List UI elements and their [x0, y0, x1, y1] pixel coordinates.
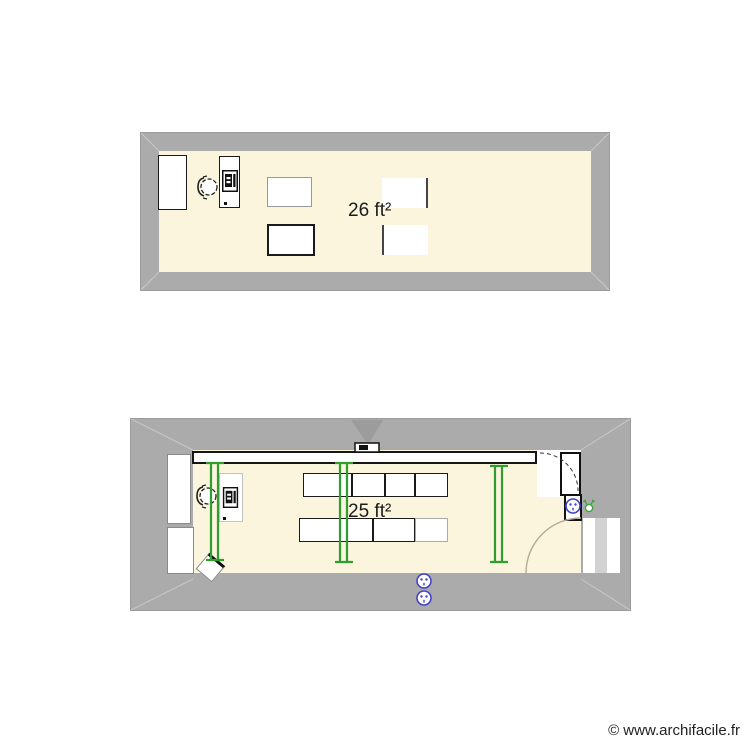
student-table[interactable] [415, 473, 448, 497]
watermark: © www.archifacile.fr [560, 722, 740, 739]
desk-mark [223, 517, 226, 520]
desk-mark [224, 202, 227, 205]
floorplan-canvas: 26 ft² [0, 0, 750, 750]
power-socket-icon[interactable] [415, 572, 433, 590]
table[interactable] [382, 225, 428, 255]
door-opening[interactable] [607, 518, 620, 573]
lower-room-area-label: 25 ft² [348, 501, 391, 523]
door-leaf[interactable] [560, 452, 581, 496]
window[interactable] [167, 527, 194, 574]
power-socket-icon[interactable] [564, 497, 582, 515]
power-socket-icon[interactable] [415, 589, 433, 607]
cabinet[interactable] [158, 155, 187, 210]
student-table[interactable] [299, 518, 340, 542]
window[interactable] [167, 454, 191, 524]
door-opening[interactable] [583, 518, 595, 573]
computer-icon [222, 170, 238, 192]
whiteboard[interactable] [192, 451, 537, 464]
office-chair-icon[interactable] [194, 483, 220, 511]
student-table[interactable] [415, 518, 448, 542]
wall-light-icon[interactable] [581, 497, 597, 513]
upper-room-area-label: 26 ft² [348, 200, 391, 222]
door-frame [595, 518, 607, 573]
student-table[interactable] [352, 473, 385, 497]
student-table[interactable] [303, 473, 352, 497]
office-chair-icon[interactable] [195, 174, 221, 202]
table[interactable] [267, 177, 312, 207]
computer-icon [222, 487, 239, 508]
student-table[interactable] [385, 473, 415, 497]
table[interactable] [267, 224, 315, 256]
